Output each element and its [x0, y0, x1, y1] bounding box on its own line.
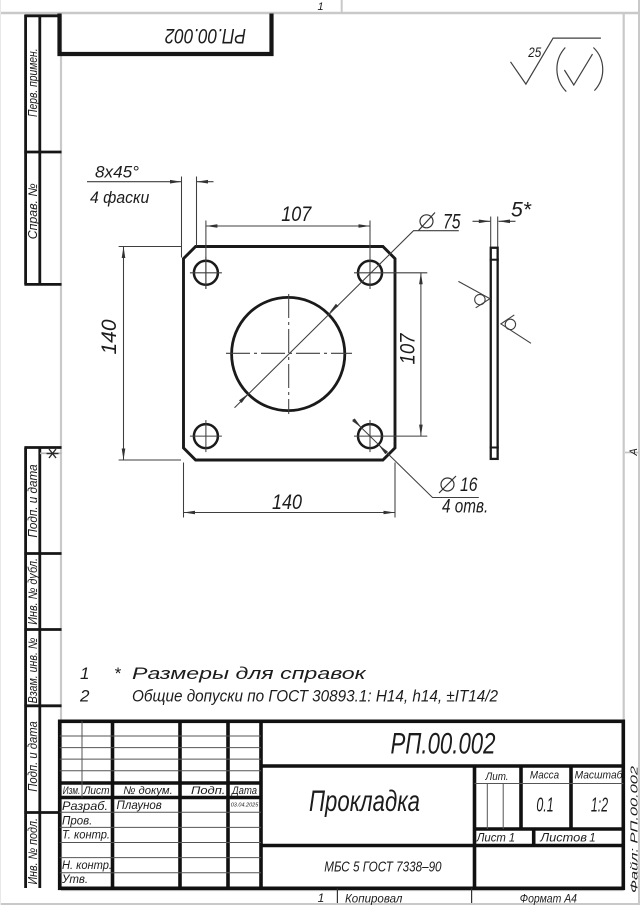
svg-text:РП.00.002: РП.00.002: [391, 728, 496, 761]
svg-text:4 фаски: 4 фаски: [90, 189, 149, 207]
svg-text:4 отв.: 4 отв.: [442, 497, 488, 518]
svg-text:16: 16: [460, 475, 478, 496]
svg-text:8х45°: 8х45°: [95, 164, 139, 182]
svg-text:107: 107: [397, 332, 420, 364]
svg-text:Н. контр.: Н. контр.: [62, 860, 112, 872]
svg-text:Файл: РП.00.002: Файл: РП.00.002: [630, 765, 640, 893]
svg-text:Общие допуски по ГОСТ 30893.1:: Общие допуски по ГОСТ 30893.1: Н14, h14,…: [132, 687, 498, 706]
svg-text:Плаунов: Плаунов: [117, 798, 162, 812]
svg-text:107: 107: [281, 203, 312, 226]
svg-text:1:2: 1:2: [591, 795, 608, 817]
svg-text:Утв.: Утв.: [61, 874, 88, 886]
svg-text:1: 1: [317, 1, 323, 13]
svg-text:Инв. № подл.: Инв. № подл.: [26, 818, 40, 885]
svg-text:Масса: Масса: [530, 770, 559, 782]
svg-text:Изм.: Изм.: [63, 785, 81, 797]
svg-text:25: 25: [527, 44, 541, 60]
svg-text:0.1: 0.1: [536, 795, 553, 817]
svg-text:5*: 5*: [511, 199, 532, 222]
svg-text:Лист: Лист: [476, 833, 507, 845]
svg-text:МБС 5 ГОСТ 7338–90: МБС 5 ГОСТ 7338–90: [324, 860, 441, 876]
svg-text:03.04.2025: 03.04.2025: [231, 803, 259, 809]
svg-text:Лист: Лист: [83, 785, 110, 797]
svg-text:1: 1: [509, 833, 515, 845]
svg-text:Перв. примен.: Перв. примен.: [26, 48, 40, 117]
svg-text:Подп. и дата: Подп. и дата: [26, 464, 40, 537]
svg-text:А: А: [628, 448, 640, 456]
svg-text:140: 140: [98, 319, 121, 354]
svg-text:Т. контр.: Т. контр.: [62, 830, 110, 842]
svg-text:Взам. инв. №: Взам. инв. №: [26, 637, 40, 703]
svg-text:Лит.: Лит.: [485, 771, 509, 783]
svg-text:Прокладка: Прокладка: [309, 785, 420, 818]
svg-text:№ докум.: № докум.: [123, 785, 172, 797]
svg-text:Подп. и дата: Подп. и дата: [26, 721, 40, 792]
svg-text:Копировал: Копировал: [345, 894, 403, 905]
svg-text:РП.00.002: РП.00.002: [165, 24, 246, 47]
svg-text:Инв. № дубл.: Инв. № дубл.: [26, 558, 40, 625]
svg-text:140: 140: [272, 491, 302, 514]
svg-text:2: 2: [79, 687, 90, 706]
svg-text:Пров.: Пров.: [62, 816, 92, 828]
svg-text:Подп.: Подп.: [191, 785, 225, 797]
svg-text:Формат А4: Формат А4: [520, 894, 577, 905]
svg-text:Листов: Листов: [539, 833, 587, 845]
svg-text:Масштаб: Масштаб: [575, 770, 624, 782]
svg-text:1: 1: [80, 664, 89, 683]
svg-text:1: 1: [318, 891, 325, 905]
svg-text:1: 1: [589, 833, 595, 845]
svg-text:Дата: Дата: [230, 785, 257, 797]
svg-text:Размеры для справок: Размеры для справок: [132, 664, 367, 683]
svg-text:75: 75: [443, 211, 461, 234]
svg-text:Разраб.: Разраб.: [62, 801, 108, 813]
svg-text:Справ. №: Справ. №: [26, 183, 40, 239]
